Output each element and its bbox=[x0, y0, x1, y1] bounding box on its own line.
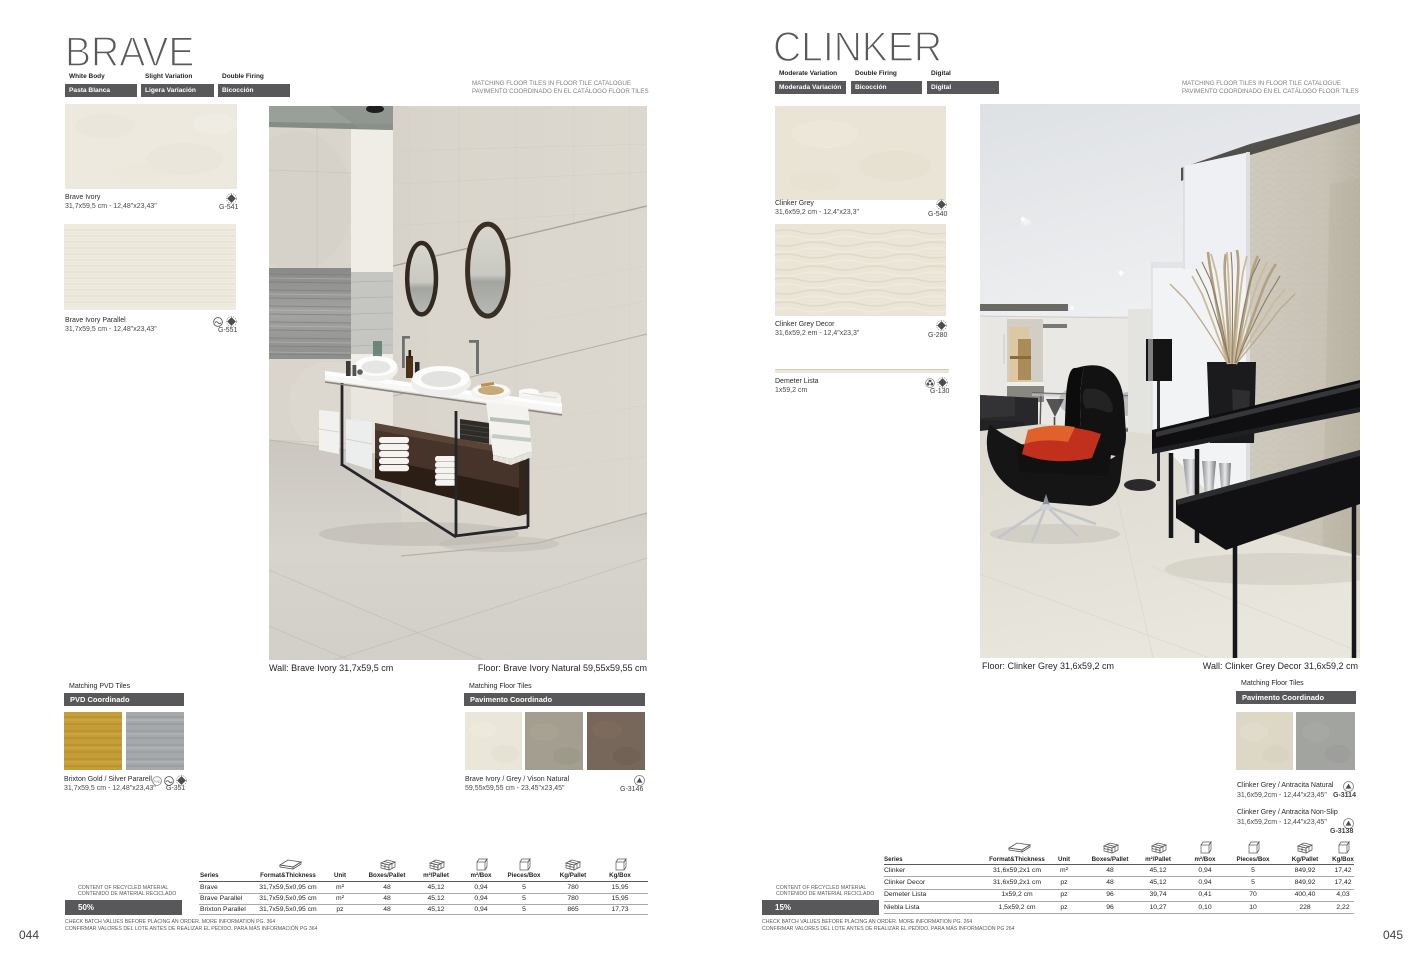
svg-text:PVD: PVD bbox=[154, 780, 162, 784]
